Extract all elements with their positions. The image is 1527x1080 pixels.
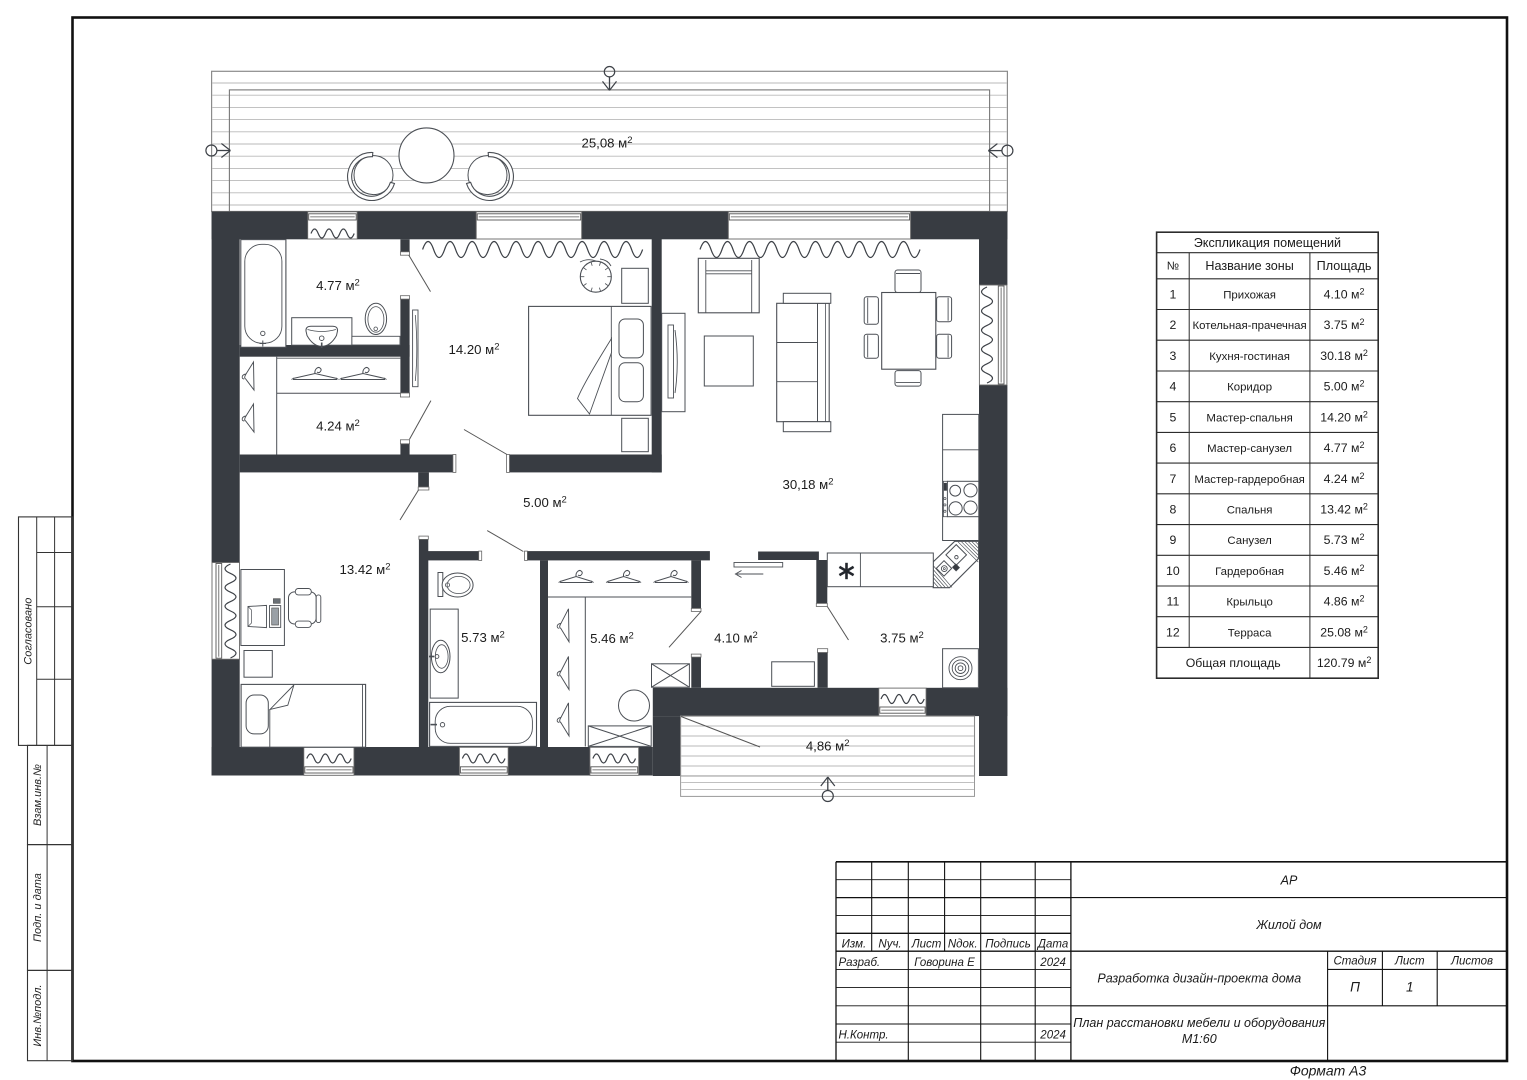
svg-text:Коридор: Коридор	[1227, 382, 1272, 394]
svg-text:10: 10	[1166, 564, 1180, 578]
svg-text:13.42 м2: 13.42 м2	[339, 562, 390, 578]
svg-text:Согласовано: Согласовано	[23, 598, 35, 665]
svg-text:6: 6	[1169, 441, 1176, 455]
svg-text:5: 5	[1169, 410, 1176, 424]
svg-text:Н.Контр.: Н.Контр.	[839, 1030, 889, 1042]
svg-text:Листов: Листов	[1450, 956, 1493, 968]
svg-text:Жилой дом: Жилой дом	[1255, 918, 1322, 932]
svg-text:4.10 м2: 4.10 м2	[1324, 287, 1365, 302]
svg-text:Крыльцо: Крыльцо	[1226, 597, 1272, 609]
svg-text:Кухня-гостиная: Кухня-гостиная	[1209, 351, 1290, 363]
svg-text:8: 8	[1169, 503, 1176, 517]
svg-text:14.20 м2: 14.20 м2	[1320, 409, 1368, 424]
svg-text:4.10 м2: 4.10 м2	[714, 630, 758, 646]
svg-text:4.24 м2: 4.24 м2	[316, 418, 360, 434]
svg-text:Лист: Лист	[911, 939, 942, 951]
svg-text:13.42 м2: 13.42 м2	[1320, 502, 1368, 517]
svg-text:14.20 м2: 14.20 м2	[448, 342, 499, 358]
svg-text:2024: 2024	[1039, 1030, 1066, 1042]
svg-text:25,08 м2: 25,08 м2	[581, 135, 632, 151]
svg-text:5.46 м2: 5.46 м2	[590, 631, 634, 647]
svg-text:5.73 м2: 5.73 м2	[1324, 532, 1365, 547]
svg-text:7: 7	[1169, 472, 1176, 486]
svg-text:План расстановки мебели и обор: План расстановки мебели и оборудования	[1073, 1016, 1325, 1030]
svg-text:3: 3	[1169, 349, 1176, 363]
svg-text:Подп. и дата: Подп. и дата	[32, 873, 44, 942]
svg-text:5.73 м2: 5.73 м2	[461, 630, 505, 646]
svg-text:4: 4	[1169, 380, 1176, 394]
svg-text:4,86 м2: 4,86 м2	[806, 738, 850, 754]
svg-text:11: 11	[1167, 595, 1180, 609]
svg-text:Nуч.: Nуч.	[878, 939, 901, 951]
svg-text:Экспликация помещений: Экспликация помещений	[1194, 236, 1341, 250]
svg-text:Спальня: Спальня	[1227, 505, 1273, 517]
svg-text:Терраса: Терраса	[1228, 627, 1272, 639]
svg-text:9: 9	[1169, 533, 1176, 547]
svg-text:Площадь: Площадь	[1317, 259, 1372, 273]
svg-text:12: 12	[1166, 625, 1180, 639]
svg-text:30,18 м2: 30,18 м2	[782, 477, 833, 493]
svg-text:2024: 2024	[1039, 957, 1066, 969]
svg-text:Гардеробная: Гардеробная	[1215, 566, 1284, 578]
svg-text:1: 1	[1406, 980, 1414, 995]
svg-text:4.24 м2: 4.24 м2	[1324, 471, 1365, 486]
svg-text:Разработка дизайн-проекта дома: Разработка дизайн-проекта дома	[1097, 972, 1301, 986]
svg-text:Изм.: Изм.	[842, 939, 867, 951]
svg-text:5.46 м2: 5.46 м2	[1324, 563, 1365, 578]
svg-text:Стадия: Стадия	[1333, 956, 1376, 968]
svg-text:АР: АР	[1280, 874, 1298, 888]
svg-text:Название зоны: Название зоны	[1205, 259, 1293, 273]
svg-text:Прихожая: Прихожая	[1223, 290, 1276, 302]
svg-text:3.75 м2: 3.75 м2	[1324, 317, 1365, 332]
svg-text:30.18 м2: 30.18 м2	[1320, 348, 1368, 363]
svg-text:Nдок.: Nдок.	[948, 939, 978, 951]
svg-text:Мастер-санузел: Мастер-санузел	[1207, 443, 1292, 455]
svg-text:3.75 м2: 3.75 м2	[880, 630, 924, 646]
svg-text:120.79 м2: 120.79 м2	[1317, 655, 1372, 670]
svg-text:4.86 м2: 4.86 м2	[1324, 594, 1365, 609]
svg-text:Мастер-спальня: Мастер-спальня	[1206, 412, 1292, 424]
svg-text:М1:60: М1:60	[1182, 1032, 1217, 1046]
svg-text:4.77 м2: 4.77 м2	[316, 278, 360, 294]
svg-text:Разраб.: Разраб.	[839, 957, 881, 969]
svg-text:5.00 м2: 5.00 м2	[1324, 379, 1365, 394]
svg-text:№: №	[1167, 261, 1179, 273]
svg-text:Дата: Дата	[1036, 939, 1068, 951]
svg-text:25.08 м2: 25.08 м2	[1320, 624, 1368, 639]
svg-text:Котельная-прачечная: Котельная-прачечная	[1193, 320, 1307, 332]
svg-text:5.00 м2: 5.00 м2	[523, 495, 567, 511]
svg-text:Говорина Е: Говорина Е	[914, 957, 975, 969]
svg-text:Лист: Лист	[1394, 956, 1425, 968]
svg-text:П: П	[1350, 980, 1360, 995]
svg-text:4.77 м2: 4.77 м2	[1324, 440, 1365, 455]
svg-text:2: 2	[1169, 318, 1176, 332]
svg-text:Мастер-гардеробная: Мастер-гардеробная	[1194, 474, 1304, 486]
svg-text:Формат А3: Формат А3	[1290, 1063, 1367, 1079]
svg-text:Подпись: Подпись	[985, 939, 1031, 951]
svg-text:Взам.инв.№: Взам.инв.№	[32, 764, 44, 826]
svg-text:Санузел: Санузел	[1227, 535, 1271, 547]
svg-text:Общая площадь: Общая площадь	[1186, 656, 1281, 670]
svg-text:1: 1	[1169, 288, 1176, 302]
svg-text:Инв.№подл.: Инв.№подл.	[32, 984, 44, 1046]
